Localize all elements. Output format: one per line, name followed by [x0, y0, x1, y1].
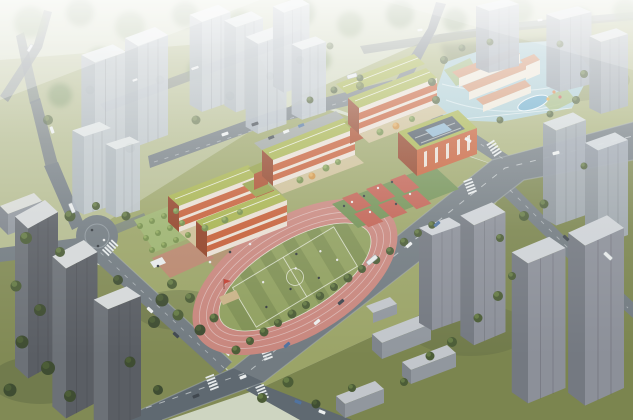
aerial-rendering: [0, 0, 633, 420]
haze-overlay: [0, 0, 633, 420]
rendering-canvas: [0, 0, 633, 420]
